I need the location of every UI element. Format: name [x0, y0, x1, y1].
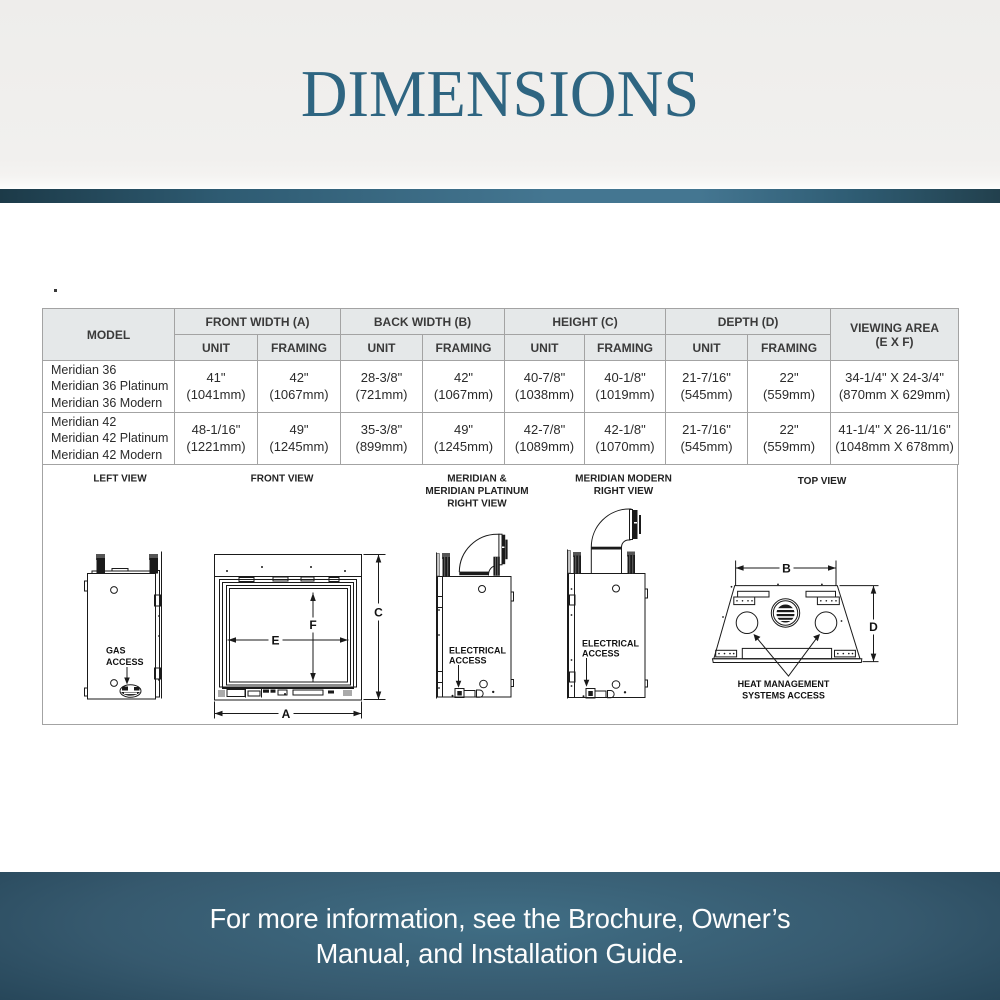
svg-text:LEFT VIEW: LEFT VIEW [93, 474, 147, 485]
svg-text:F: F [309, 618, 316, 632]
svg-text:RIGHT VIEW: RIGHT VIEW [594, 486, 654, 497]
svg-text:GAS: GAS [106, 646, 126, 656]
svg-text:ELECTRICAL: ELECTRICAL [449, 646, 506, 656]
svg-text:E: E [271, 634, 279, 648]
svg-text:HEAT MANAGEMENT: HEAT MANAGEMENT [738, 679, 830, 689]
svg-text:ELECTRICAL: ELECTRICAL [582, 639, 639, 649]
svg-text:ACCESS: ACCESS [449, 656, 487, 666]
svg-text:MERIDIAN PLATINUM: MERIDIAN PLATINUM [425, 486, 528, 497]
svg-text:MERIDIAN &: MERIDIAN & [447, 474, 506, 485]
svg-text:TOP VIEW: TOP VIEW [798, 476, 847, 487]
svg-text:SYSTEMS ACCESS: SYSTEMS ACCESS [742, 691, 825, 701]
svg-text:D: D [869, 620, 878, 634]
svg-text:MERIDIAN MODERN: MERIDIAN MODERN [575, 474, 672, 485]
svg-text:ACCESS: ACCESS [582, 649, 620, 659]
svg-text:RIGHT VIEW: RIGHT VIEW [447, 499, 507, 510]
svg-text:A: A [282, 707, 291, 721]
svg-text:C: C [374, 606, 383, 620]
svg-text:ACCESS: ACCESS [106, 657, 144, 667]
svg-text:B: B [782, 562, 791, 576]
svg-text:FRONT VIEW: FRONT VIEW [251, 474, 314, 485]
